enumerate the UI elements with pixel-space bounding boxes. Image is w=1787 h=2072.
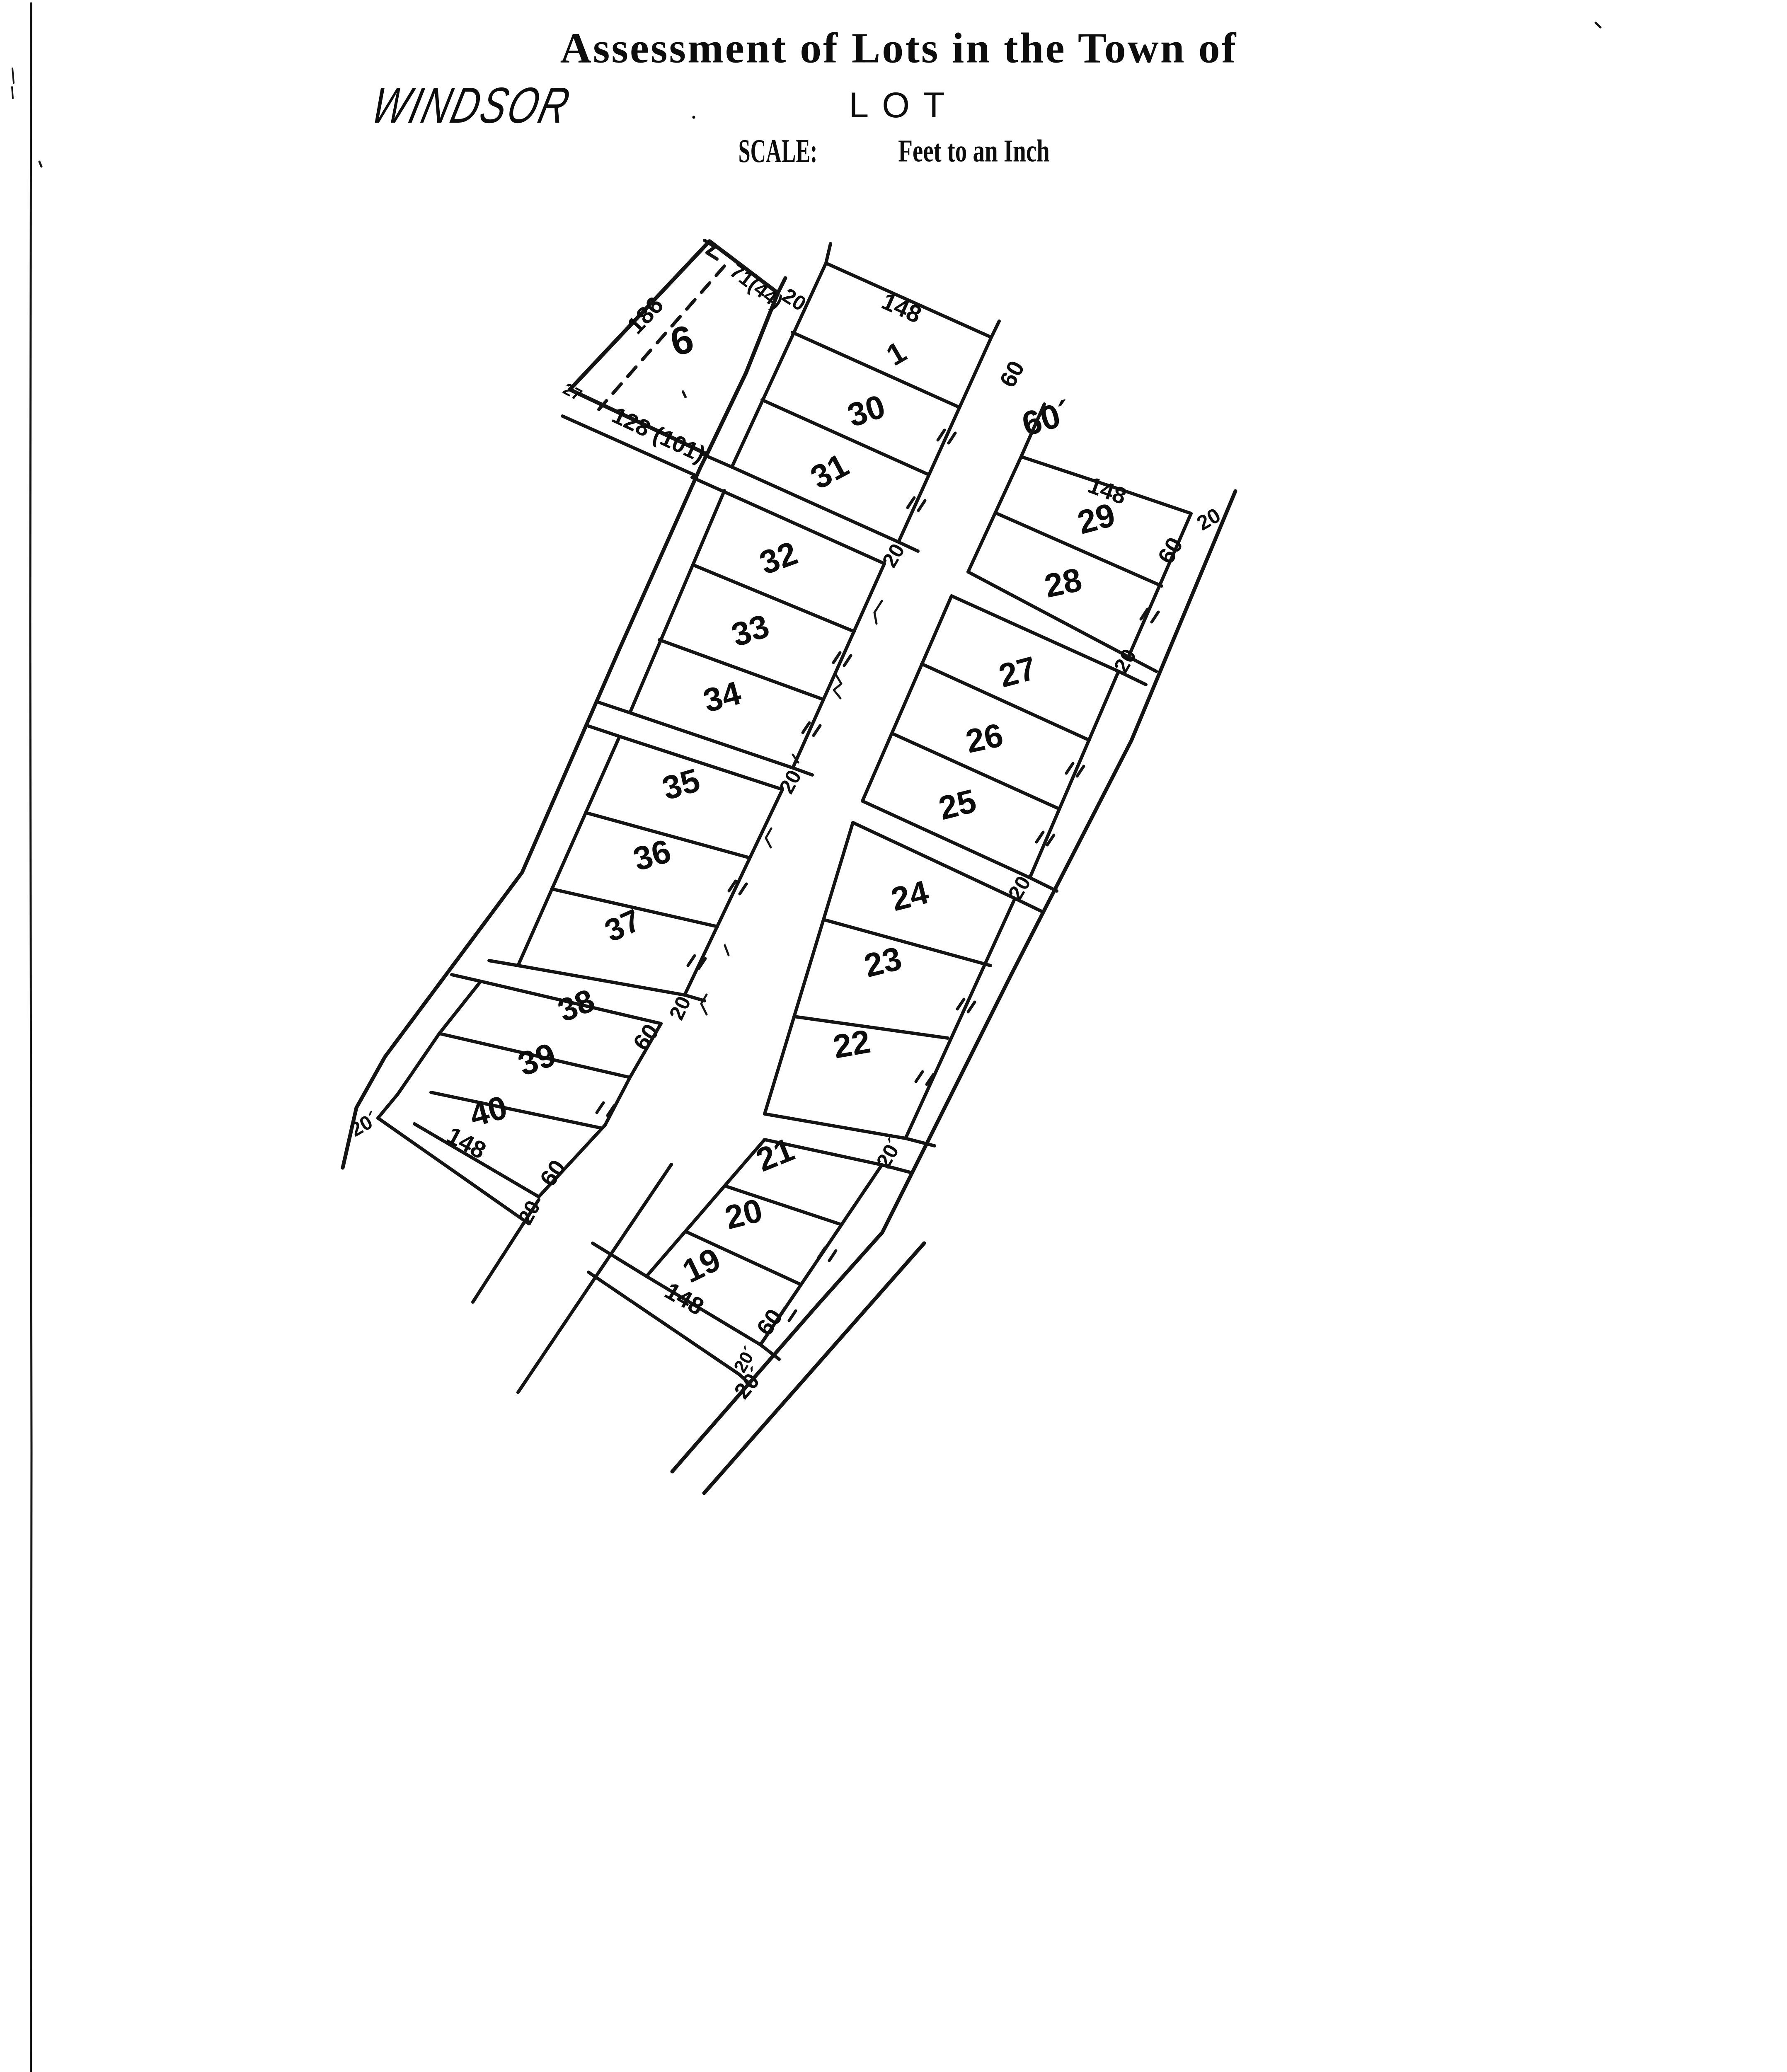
svg-text:Feet to an Inch: Feet to an Inch	[898, 133, 1050, 168]
svg-text:28: 28	[1041, 561, 1085, 605]
svg-text:.: .	[692, 102, 696, 123]
svg-text:LOT: LOT	[849, 85, 958, 125]
svg-text:Assessment of Lots in the Town: Assessment of Lots in the Town of	[560, 24, 1237, 72]
svg-text:26: 26	[962, 716, 1006, 760]
svg-text:SCALE:: SCALE:	[739, 133, 818, 169]
svg-text:WINDSOR: WINDSOR	[366, 77, 577, 133]
svg-text:22: 22	[831, 1023, 873, 1065]
